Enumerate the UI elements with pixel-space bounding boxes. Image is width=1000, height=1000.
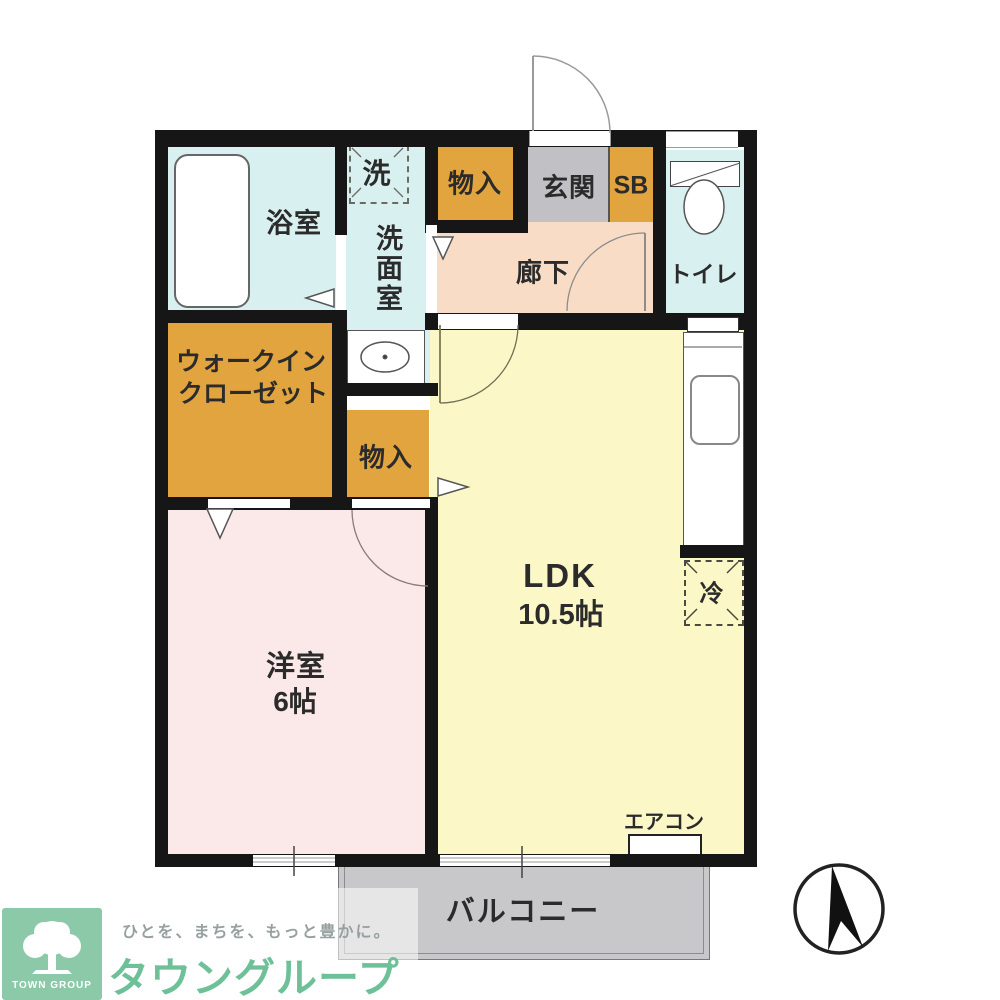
floor-plan: 浴室 洗 洗面室 物入 玄関 SB トイレ 廊下 ウォークイン クローゼット 物… bbox=[0, 0, 1000, 1000]
pass-through-under-toilet bbox=[687, 317, 739, 332]
label-washer: 洗 bbox=[362, 152, 391, 192]
north-arrow bbox=[828, 866, 863, 951]
label-ldk-name: LDK bbox=[523, 557, 597, 595]
entrance-opening bbox=[529, 131, 611, 146]
logo-tagline: ひとを、まちを、もっと豊かに。 bbox=[122, 918, 392, 942]
wall-washroom-right bbox=[425, 130, 438, 225]
wall-counter-bottom bbox=[680, 545, 744, 558]
label-aircon: エアコン bbox=[624, 806, 704, 835]
label-balcony: バルコニー bbox=[446, 888, 600, 930]
label-storage-mid: 物入 bbox=[359, 438, 413, 475]
washbasin-counter bbox=[347, 330, 425, 385]
wall-bedroom-ldk bbox=[425, 497, 438, 854]
label-washroom: 洗面室 bbox=[368, 224, 407, 314]
bath-door-opening bbox=[336, 235, 346, 310]
label-shoebox: SB bbox=[614, 172, 649, 201]
label-fridge: 冷 bbox=[700, 574, 725, 609]
bedroom-door-opening bbox=[352, 499, 430, 508]
label-bedroom-size: 6帖 bbox=[273, 680, 317, 720]
toilet-tank bbox=[670, 161, 740, 187]
label-wic-line2: クローゼット bbox=[178, 374, 328, 410]
label-hallway: 廊下 bbox=[516, 253, 570, 290]
label-bath: 浴室 bbox=[266, 202, 322, 241]
logo-brand: タウングループ bbox=[108, 944, 400, 1000]
wic-door-opening bbox=[208, 499, 290, 508]
label-storage-top: 物入 bbox=[448, 164, 502, 201]
label-ldk-size: 10.5帖 bbox=[518, 591, 603, 633]
svg-text:TOWN GROUP: TOWN GROUP bbox=[12, 980, 92, 991]
wall-right bbox=[744, 130, 757, 867]
bedroom-window bbox=[253, 855, 335, 866]
label-bedroom-name: 洋室 bbox=[266, 643, 326, 685]
ldk-window bbox=[440, 855, 610, 866]
tree-icon: TOWN GROUP bbox=[2, 908, 102, 1000]
washroom-door-opening bbox=[426, 225, 437, 313]
town-group-badge: TOWN GROUP bbox=[2, 908, 102, 1000]
wall-bath-wic bbox=[155, 310, 347, 323]
toilet-window bbox=[666, 131, 738, 148]
label-entrance: 玄関 bbox=[542, 168, 596, 205]
kitchen-sink bbox=[690, 375, 740, 445]
wall-bath-washroom bbox=[335, 143, 347, 235]
wall-storage-entrance bbox=[513, 130, 528, 225]
wall-sb-toilet bbox=[653, 130, 666, 330]
hallway-ldk-door-opening bbox=[438, 314, 518, 329]
entrance-door bbox=[533, 56, 610, 133]
wall-wic-washroom bbox=[332, 310, 347, 500]
wall-washroom-bottom bbox=[332, 383, 438, 396]
label-wic-line1: ウォークイン bbox=[176, 342, 326, 378]
label-toilet: トイレ bbox=[669, 255, 738, 289]
bathtub bbox=[174, 154, 250, 308]
